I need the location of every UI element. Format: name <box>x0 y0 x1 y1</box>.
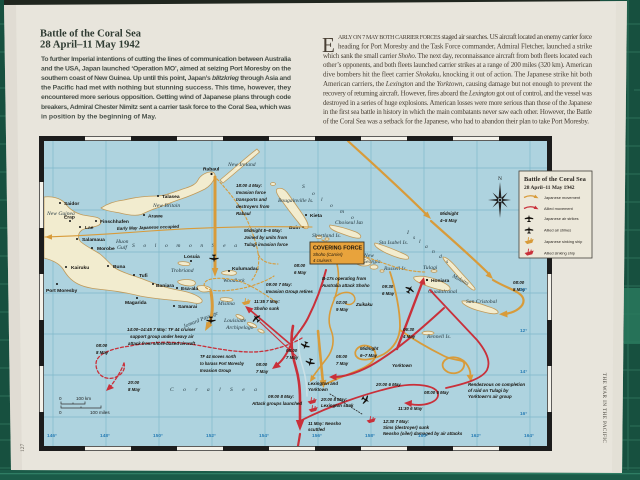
svg-text:Talasea: Talasea <box>162 194 180 200</box>
svg-text:0: 0 <box>59 410 62 415</box>
svg-text:Kairuku: Kairuku <box>71 265 89 271</box>
svg-text:Midnight: Midnight <box>440 211 459 216</box>
svg-text:Finschhafen: Finschhafen <box>100 219 129 225</box>
svg-text:Lexington sunk: Lexington sunk <box>321 403 354 408</box>
svg-text:Baniara: Baniara <box>156 283 174 289</box>
svg-text:100 miles: 100 miles <box>90 410 110 415</box>
svg-text:9 May: 9 May <box>336 307 349 312</box>
svg-text:of raid on Tulagi by: of raid on Tulagi by <box>468 388 509 393</box>
svg-text:Japanese air strikes: Japanese air strikes <box>544 216 579 221</box>
svg-text:Joined by units from: Joined by units from <box>244 235 287 240</box>
svg-text:Sta Isabel Is.: Sta Isabel Is. <box>379 240 408 246</box>
svg-text:transports and: transports and <box>236 197 267 202</box>
svg-text:other’s opponents, and both fl: other’s opponents, and both fleets launc… <box>323 61 593 69</box>
svg-text:158°: 158° <box>365 433 375 439</box>
svg-text:10°: 10° <box>520 287 527 293</box>
svg-text:05:00: 05:00 <box>336 354 348 359</box>
svg-text:100 km: 100 km <box>76 396 91 401</box>
svg-text:dive bombers hit the fleet car: dive bombers hit the fleet carrier Shoka… <box>323 71 593 79</box>
svg-text:Lae: Lae <box>85 225 94 231</box>
svg-text:Salamaua: Salamaua <box>82 237 105 243</box>
svg-text:11:35 7 May:: 11:35 7 May: <box>254 299 280 304</box>
svg-text:148°: 148° <box>100 433 110 439</box>
svg-text:162°: 162° <box>471 433 481 439</box>
svg-text:28 April–11 May 1942: 28 April–11 May 1942 <box>40 38 140 50</box>
svg-text:Bougainville Is.: Bougainville Is. <box>278 198 313 204</box>
svg-text:S o l o m o n S e a: S o l o m o n S e a <box>132 243 241 249</box>
svg-text:Erap: Erap <box>64 215 75 221</box>
svg-text:southern coast of New Guinea.: southern coast of New Guinea. Up until t… <box>41 75 291 82</box>
svg-text:Shoho (Carrier): Shoho (Carrier) <box>313 252 343 257</box>
svg-text:in the first sea battle in his: in the first sea battle in history in wh… <box>323 108 592 116</box>
svg-text:Rabaul: Rabaul <box>203 167 220 173</box>
svg-text:0: 0 <box>59 396 62 401</box>
svg-text:16°: 16° <box>520 411 527 417</box>
svg-text:and the USA, Japan launched ‘O: and the USA, Japan launched ‘Operation M… <box>41 66 291 73</box>
svg-text:20:00: 20:00 <box>127 380 140 385</box>
svg-text:Shoho sunk: Shoho sunk <box>254 306 280 311</box>
svg-text:160°: 160° <box>418 433 428 439</box>
svg-text:09:30: 09:30 <box>382 284 394 289</box>
svg-text:support group under heavy air: support group under heavy air <box>130 334 194 339</box>
svg-text:Kulumadau: Kulumadau <box>232 266 259 272</box>
svg-text:08:00: 08:00 <box>513 280 525 285</box>
svg-text:146°: 146° <box>47 433 57 439</box>
svg-text:B-17s operating from: B-17s operating from <box>322 276 366 281</box>
svg-text:Allied sinking ship: Allied sinking ship <box>544 251 575 256</box>
svg-text:Louisiade: Louisiade <box>223 318 247 324</box>
svg-text:encountered more serious oppos: encountered more serious opposition. Get… <box>41 94 291 101</box>
svg-text:Trobriand: Trobriand <box>171 268 194 274</box>
svg-text:C o r a l S e a: C o r a l S e a <box>170 387 261 393</box>
svg-text:THE WAR IN THE PACIFIC: THE WAR IN THE PACIFIC <box>601 373 607 444</box>
svg-text:Japanese sinking ship: Japanese sinking ship <box>544 239 582 244</box>
svg-text:12°: 12° <box>520 328 527 334</box>
svg-text:20:00 6 May: 20:00 6 May <box>375 382 401 387</box>
svg-text:14:00–14:45 7 May: TF 44 cruis: 14:00–14:45 7 May: TF 44 cruiser <box>127 327 196 332</box>
svg-text:Shortland Is.: Shortland Is. <box>312 233 341 239</box>
svg-text:11 May: Neosho: 11 May: Neosho <box>308 421 341 426</box>
svg-text:Buna: Buna <box>113 264 126 270</box>
svg-text:Rabaul: Rabaul <box>236 211 251 216</box>
svg-text:to harass Port Moresby: to harass Port Moresby <box>200 361 244 366</box>
svg-text:Rendezvous on completion: Rendezvous on completion <box>468 382 525 387</box>
svg-text:Zuikaku: Zuikaku <box>355 302 373 307</box>
svg-text:Losuia: Losuia <box>184 254 200 260</box>
svg-text:7 May: 7 May <box>286 355 299 360</box>
svg-text:09:00 8 May:: 09:00 8 May: <box>268 394 295 399</box>
svg-text:Invasion Group retires: Invasion Group retires <box>266 289 313 294</box>
svg-text:8 May: 8 May <box>128 387 141 392</box>
svg-text:Battle of the Coral Sea: Battle of the Coral Sea <box>524 176 587 183</box>
svg-text:154°: 154° <box>259 433 269 439</box>
svg-text:attack from shore-based aircra: attack from shore-based aircraft <box>128 341 196 346</box>
svg-text:Japanese movement: Japanese movement <box>544 195 581 200</box>
svg-text:127: 127 <box>20 444 26 453</box>
svg-text:Tulagi invasion force: Tulagi invasion force <box>244 242 288 247</box>
svg-text:Esa-ala: Esa-ala <box>181 286 198 292</box>
svg-text:08:00 6 May: 08:00 6 May <box>424 390 449 395</box>
svg-text:Allied air strikes: Allied air strikes <box>544 228 571 233</box>
svg-text:the Pacific had met with nothi: the Pacific had met with nothing but stu… <box>41 85 291 92</box>
svg-text:Arawe: Arawe <box>148 214 163 220</box>
svg-text:4 cruisers: 4 cruisers <box>313 258 332 263</box>
svg-text:of the Coral Sea was a setback: of the Coral Sea was a setback for the J… <box>323 118 589 126</box>
svg-text:Rennell Is.: Rennell Is. <box>426 334 451 340</box>
svg-text:New Ireland: New Ireland <box>227 162 256 168</box>
svg-text:7 May: 7 May <box>336 361 349 366</box>
svg-text:8 May: 8 May <box>96 350 109 355</box>
svg-text:09:00 7 May:: 09:00 7 May: <box>266 282 293 287</box>
svg-text:14°: 14° <box>520 369 527 375</box>
svg-text:Gulf: Gulf <box>117 244 128 251</box>
svg-text:Tulagi: Tulagi <box>423 265 438 271</box>
svg-text:08:00: 08:00 <box>256 362 268 367</box>
svg-text:which sank the small carrier S: which sank the small carrier Shoho. The … <box>323 52 593 60</box>
svg-text:12:30 7 May:: 12:30 7 May: <box>383 419 410 424</box>
svg-text:11:30 6 May: 11:30 6 May <box>398 406 423 411</box>
svg-text:Sims (destroyer) sunk: Sims (destroyer) sunk <box>383 425 430 430</box>
svg-text:Morobe: Morobe <box>97 246 115 252</box>
svg-text:N: N <box>498 176 502 182</box>
svg-text:08:00: 08:00 <box>96 343 108 348</box>
svg-text:Yorktown: Yorktown <box>392 363 412 368</box>
svg-text:Yorktown: Yorktown <box>308 387 328 392</box>
svg-text:Allied movement: Allied movement <box>544 206 574 211</box>
svg-text:Samarai: Samarai <box>178 304 198 310</box>
svg-text:New Britain: New Britain <box>152 203 180 209</box>
svg-text:American carriers, the Lexingt: American carriers, the Lexington and the… <box>323 80 592 88</box>
svg-text:in position by the beginning o: in position by the beginning of May. <box>41 113 157 120</box>
svg-text:6 May: 6 May <box>294 270 307 275</box>
svg-text:08:00: 08:00 <box>294 263 306 268</box>
svg-text:4–5 May: 4–5 May <box>439 218 458 223</box>
svg-text:Attack groups launched: Attack groups launched <box>251 401 302 406</box>
svg-text:heading for Port Moresby and t: heading for Port Moresby and the Task Fo… <box>338 42 592 50</box>
svg-text:recovery of returning aircraft: recovery of returning aircraft. However,… <box>323 89 592 97</box>
svg-text:02:00: 02:00 <box>336 300 348 305</box>
svg-text:Saidor: Saidor <box>64 201 79 207</box>
svg-text:Kieta: Kieta <box>310 213 322 219</box>
svg-text:06:30: 06:30 <box>403 327 415 332</box>
svg-text:COVERING FORCE: COVERING FORCE <box>313 246 363 252</box>
svg-text:Port Moresby: Port Moresby <box>46 288 78 294</box>
svg-text:Honiara: Honiara <box>431 278 449 284</box>
svg-text:Yorktown’s air group: Yorktown’s air group <box>468 394 512 399</box>
svg-text:Buin: Buin <box>289 225 300 231</box>
svg-text:Georgia: Georgia <box>362 259 381 265</box>
svg-text:destroyers from: destroyers from <box>236 204 270 209</box>
svg-text:Midnight: Midnight <box>360 346 379 351</box>
svg-text:28 April–11 May 1942: 28 April–11 May 1942 <box>524 185 575 191</box>
svg-text:Magarida: Magarida <box>125 300 147 306</box>
svg-text:156°: 156° <box>312 433 322 439</box>
svg-text:152°: 152° <box>206 433 216 439</box>
svg-text:20:00 8 May:: 20:00 8 May: <box>320 397 348 402</box>
svg-text:Australia attack Shoho: Australia attack Shoho <box>321 283 370 288</box>
svg-text:4 May: 4 May <box>402 334 416 339</box>
svg-text:6–7 May: 6–7 May <box>360 353 378 358</box>
svg-text:18:00 4 May:: 18:00 4 May: <box>236 183 263 188</box>
svg-text:Misima: Misima <box>217 301 235 307</box>
svg-text:Invasion force: Invasion force <box>236 190 266 195</box>
svg-text:150°: 150° <box>153 433 163 439</box>
svg-text:breakers, Admiral Chester Nimi: breakers, Admiral Chester Nimitz sent a … <box>41 104 291 111</box>
svg-text:08:00: 08:00 <box>286 348 298 353</box>
svg-text:To further Imperial intentions: To further Imperial intentions of cuttin… <box>41 56 291 63</box>
svg-text:Invasion Group: Invasion Group <box>200 368 231 373</box>
svg-text:Choiseul Is.: Choiseul Is. <box>335 220 362 226</box>
svg-text:7 May: 7 May <box>256 369 269 374</box>
svg-text:ARLY ON 7 MAY BOTH CARRIER FOR: ARLY ON 7 MAY BOTH CARRIER FORCES staged… <box>338 33 592 41</box>
svg-text:Tufi: Tufi <box>139 273 148 279</box>
svg-text:destroyed in a series of huge: destroyed in a series of huge explosions… <box>323 99 592 107</box>
svg-text:Archipelago: Archipelago <box>225 325 254 331</box>
svg-text:scuttled: scuttled <box>308 427 325 432</box>
svg-text:Midnight 5–6 May:: Midnight 5–6 May: <box>244 228 283 233</box>
svg-text:Lexington and: Lexington and <box>308 381 338 386</box>
svg-text:6 May: 6 May <box>382 291 395 296</box>
svg-text:TF 44 moves north: TF 44 moves north <box>200 354 236 359</box>
svg-text:San Cristobal: San Cristobal <box>466 299 497 305</box>
svg-text:164°: 164° <box>524 433 534 439</box>
